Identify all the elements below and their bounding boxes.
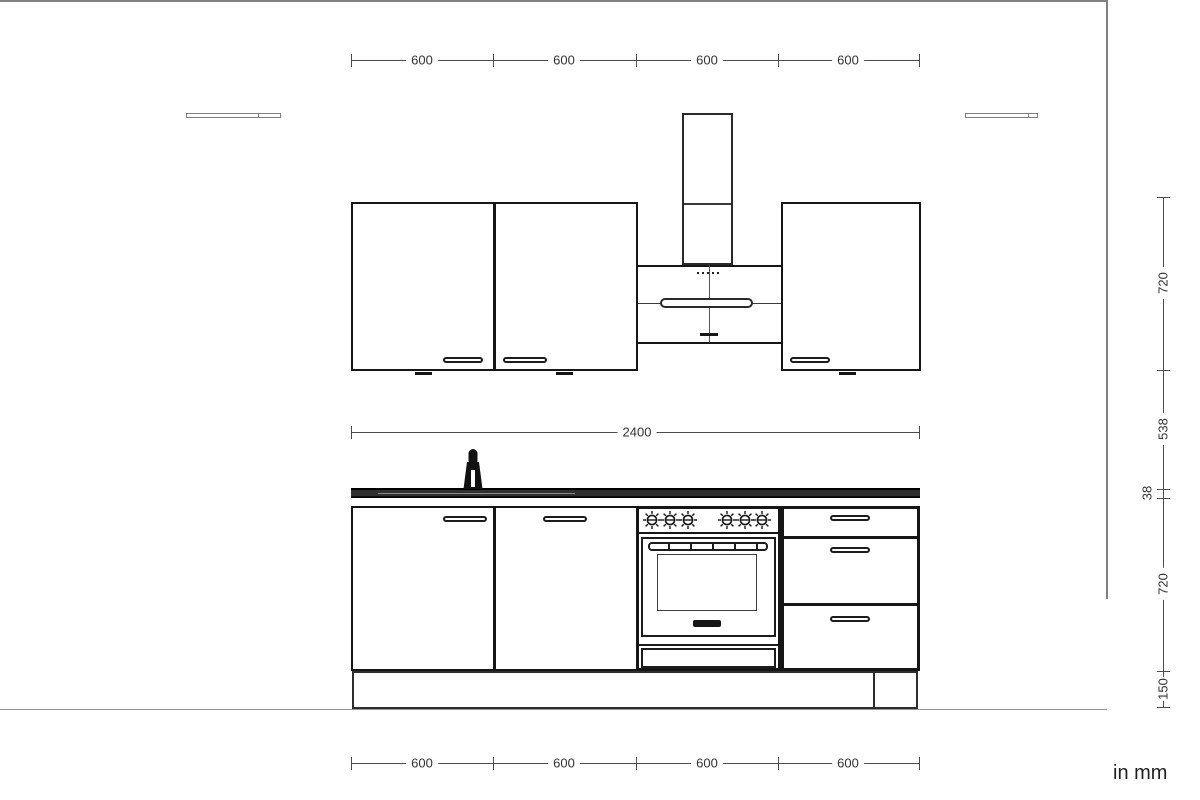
dim-label: 600 xyxy=(548,53,580,68)
door-handle xyxy=(543,516,587,522)
door-divider xyxy=(493,204,496,369)
hood-control-dot xyxy=(707,272,709,274)
kitchen-elevation-drawing: 600 600 600 600 2400 xyxy=(0,0,1200,800)
under-cabinet-light xyxy=(415,372,432,375)
ceiling-rail-left[interactable] xyxy=(186,113,281,118)
oven-door xyxy=(641,537,776,637)
drawer-handle xyxy=(830,547,870,553)
dim-label: 600 xyxy=(691,53,723,68)
dim-label: 600 xyxy=(832,53,864,68)
base-cabinet-left-group[interactable] xyxy=(351,506,638,671)
hood-mark xyxy=(700,333,718,336)
dim-label: 2400 xyxy=(618,425,657,440)
dim-label: 538 xyxy=(1156,413,1171,445)
door-handle xyxy=(503,357,547,363)
dim-label: 600 xyxy=(691,756,723,771)
dim-label: 600 xyxy=(548,756,580,771)
dimension-bottom: 600 600 600 600 xyxy=(351,750,920,776)
sink-edge-line xyxy=(378,493,575,494)
drawer-divider xyxy=(784,603,917,606)
countertop[interactable] xyxy=(351,488,920,498)
dim-label: 150 xyxy=(1156,677,1171,701)
right-wall-line xyxy=(1106,0,1108,599)
under-cabinet-light xyxy=(839,372,856,375)
door-handle xyxy=(443,357,483,363)
door-handle xyxy=(790,357,830,363)
ceiling-line xyxy=(0,0,1108,2)
hood-control-dot xyxy=(717,272,719,274)
hood-chimney[interactable] xyxy=(682,113,733,265)
under-cabinet-light xyxy=(556,372,573,375)
faucet-icon[interactable] xyxy=(461,449,485,489)
control-panel-line xyxy=(639,532,778,534)
ceiling-rail-right[interactable] xyxy=(965,113,1038,118)
hob-knobs-icon xyxy=(639,509,778,532)
plinth xyxy=(352,671,918,709)
dim-label: 38 xyxy=(1140,481,1155,505)
hood-body[interactable] xyxy=(638,265,781,344)
plinth-divider xyxy=(873,673,875,707)
unit-note: in mm xyxy=(1113,762,1167,785)
dim-label: 720 xyxy=(1156,568,1171,600)
dim-label: 600 xyxy=(832,756,864,771)
oven-badge xyxy=(693,620,721,627)
chimney-joint-line xyxy=(684,203,731,205)
hood-handle xyxy=(660,298,753,308)
drawer-unit[interactable] xyxy=(781,506,920,671)
oven-unit[interactable] xyxy=(636,506,781,671)
drawer-handle xyxy=(830,616,870,622)
hood-control-dot xyxy=(702,272,704,274)
oven-gap-line xyxy=(639,644,778,646)
door-divider xyxy=(493,508,496,669)
dim-label: 600 xyxy=(406,53,438,68)
floor-line xyxy=(0,709,1107,710)
drawer-handle xyxy=(830,515,870,521)
wall-cabinet-left-group[interactable] xyxy=(351,202,638,371)
dim-label: 720 xyxy=(1156,267,1171,299)
rail-divider xyxy=(258,114,259,117)
drawer-divider xyxy=(784,536,917,539)
oven-window xyxy=(657,554,757,611)
oven-handle xyxy=(648,542,768,551)
door-handle xyxy=(443,516,487,522)
dim-label: 600 xyxy=(406,756,438,771)
dimension-middle: 2400 xyxy=(351,419,920,445)
wall-cabinet-right[interactable] xyxy=(781,202,921,371)
rail-divider xyxy=(1028,114,1029,117)
dimension-right: 720 538 38 720 150 xyxy=(1144,197,1182,709)
dimension-top: 600 600 600 600 xyxy=(351,47,920,73)
hood-control-dot xyxy=(697,272,699,274)
oven-bottom-drawer xyxy=(641,648,776,668)
hood-control-dot xyxy=(712,272,714,274)
